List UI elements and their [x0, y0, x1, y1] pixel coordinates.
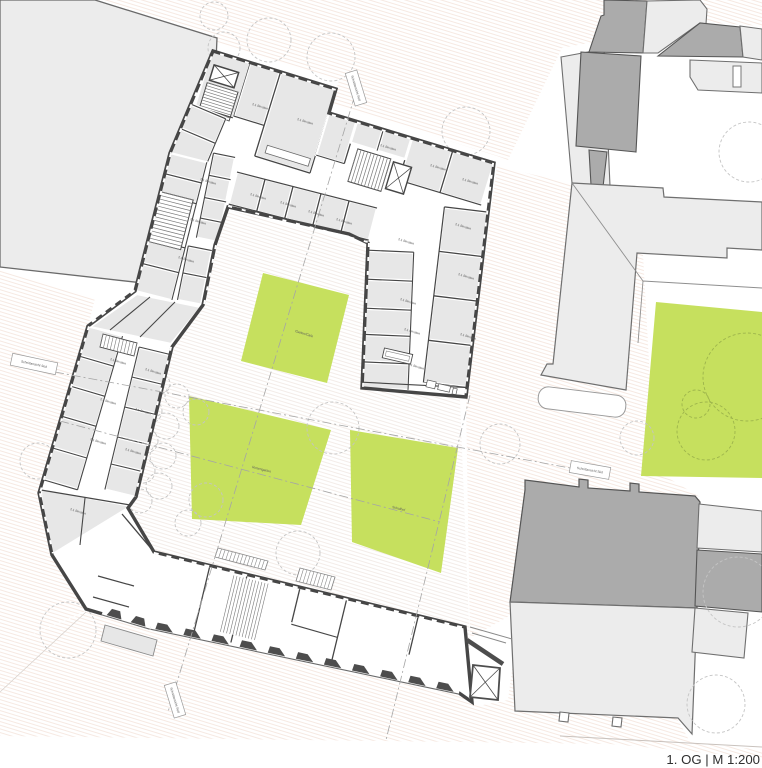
svg-text:1. OG | M 1:200: 1. OG | M 1:200 [666, 752, 760, 767]
